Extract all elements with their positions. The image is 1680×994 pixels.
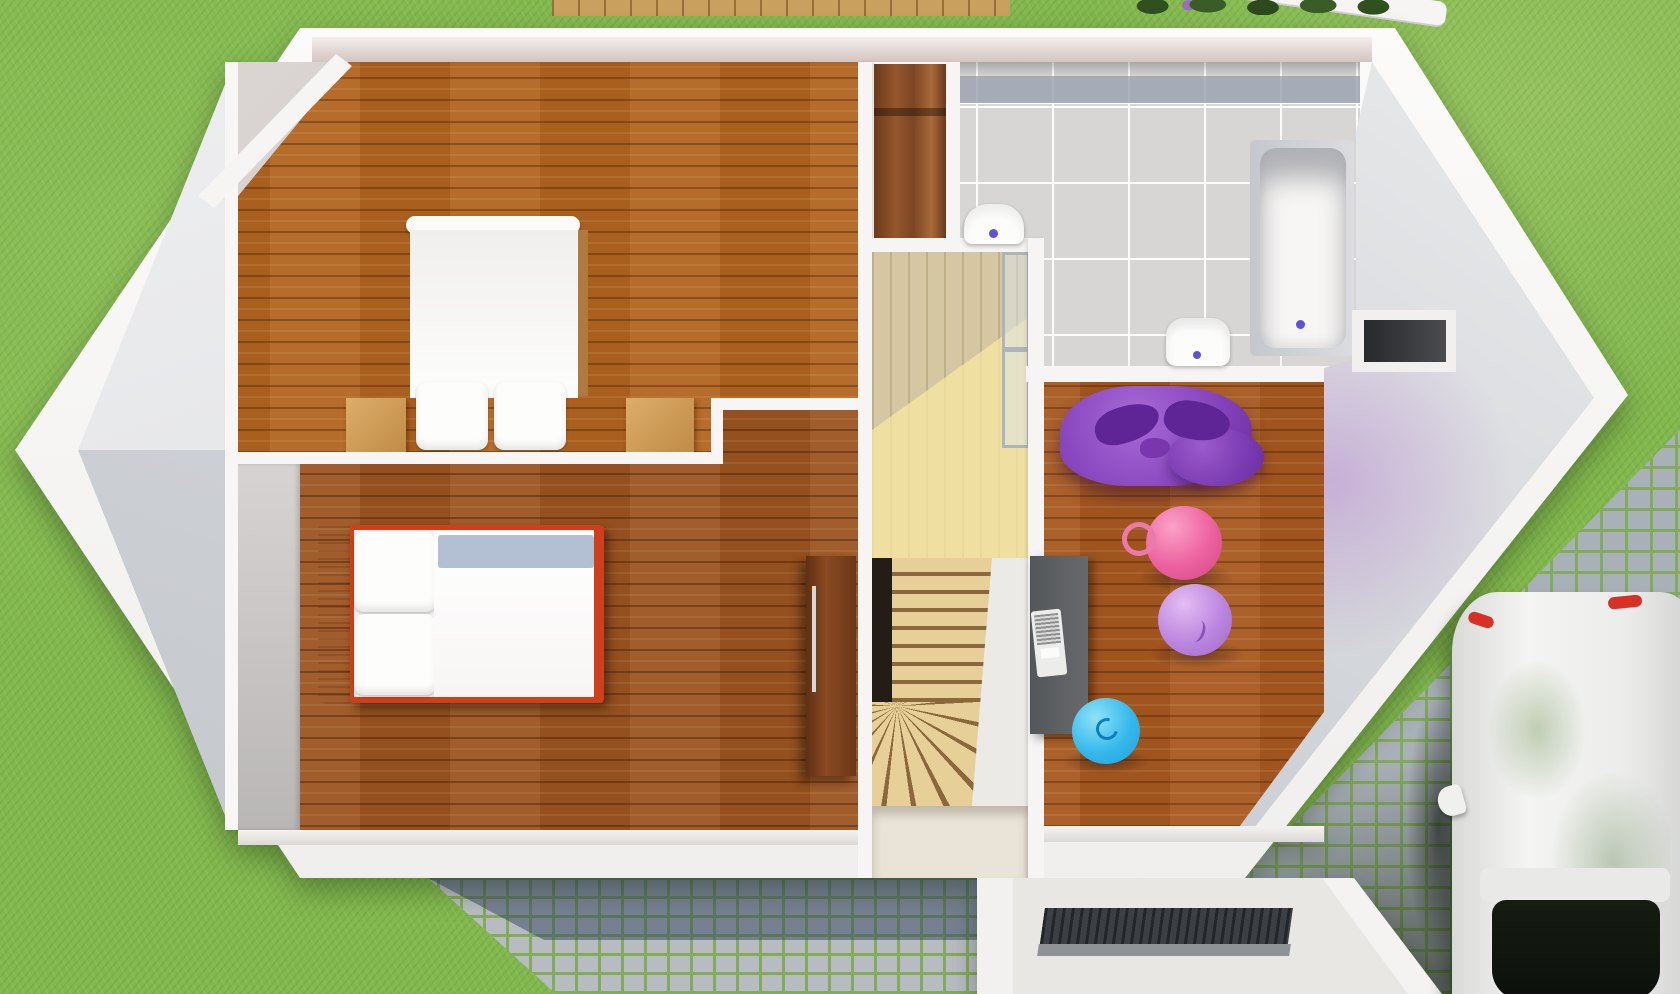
nightstand-right: [626, 398, 694, 452]
car-roof-pillar: [1480, 868, 1670, 902]
doormat-front-edge: [1037, 944, 1291, 956]
south-wall-ledge-left: [238, 830, 858, 845]
toilet-flush-button: [989, 229, 998, 238]
wardrobe-handle: [812, 586, 816, 692]
gym-ball-lavender: [1158, 584, 1232, 656]
double-bed-pillow-left: [416, 382, 488, 450]
double-bed-pillow-right: [494, 382, 566, 450]
nightstand-left: [346, 398, 406, 452]
south-wall-ledge-right: [1044, 826, 1324, 842]
kids-bedroom-knee-wall: [238, 464, 300, 830]
double-bed-duvet: [410, 230, 578, 398]
built-in-closet: [874, 64, 946, 238]
washbasin: [1166, 318, 1230, 366]
gym-ball-pink: [1146, 506, 1222, 580]
bathtub-drain: [1296, 320, 1305, 329]
bathroom-south-wall: [1026, 366, 1360, 382]
porch-left-wall: [977, 878, 1013, 994]
toilet: [964, 204, 1024, 244]
washbasin-faucet: [1193, 351, 1201, 359]
floor-plan-render: [0, 0, 1680, 994]
single-bed-sheet-fold: [438, 535, 594, 568]
wardrobe-dark-wood: [806, 556, 856, 776]
lavender-ball-mark: [1187, 618, 1208, 644]
single-bed-headboard: [318, 522, 352, 704]
bathroom-dark-tile-band: [960, 76, 1360, 103]
closet-east-wall: [946, 62, 960, 240]
balustrade-frame-bar: [1005, 347, 1027, 352]
gym-ball-blue: [1072, 698, 1140, 764]
bathroom-wall-shadow: [960, 62, 1360, 77]
single-bed-pillow-top: [354, 532, 436, 612]
ground-floor-landing: [872, 806, 1028, 878]
stair-hall-west-wall: [858, 62, 872, 878]
single-bed-pillow-bottom: [354, 614, 436, 695]
laptop-trackpad: [1041, 647, 1060, 659]
storage-niche: [1364, 320, 1446, 362]
car-windshield: [1492, 900, 1660, 994]
staircase-upper-flight: [892, 558, 992, 706]
blue-ball-mark: [1092, 714, 1122, 744]
glass-balustrade: [1002, 252, 1030, 448]
closet-gap: [874, 108, 946, 116]
laptop-keyboard: [1034, 613, 1061, 645]
bathtub: [1260, 148, 1346, 348]
north-wall-inner-face: [312, 37, 1372, 62]
